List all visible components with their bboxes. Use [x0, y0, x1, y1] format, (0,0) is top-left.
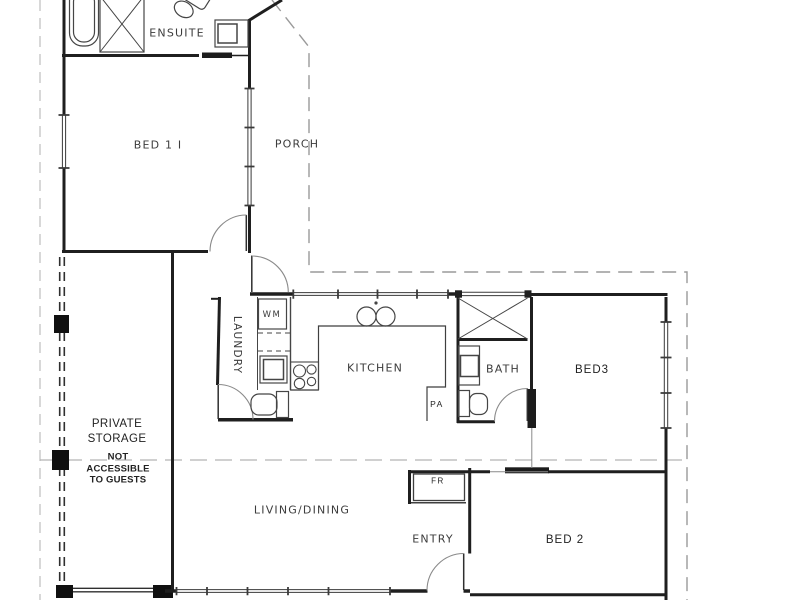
bathtub-icon: [70, 0, 99, 46]
bath-door: [495, 389, 528, 422]
appliance-label-fridge: FR: [431, 477, 445, 486]
kitchen-sink-icon: [357, 301, 395, 326]
room-label-kitchen: KITCHEN: [347, 362, 403, 375]
room-label-private-storage-line2: STORAGE: [88, 433, 147, 445]
storage-note-line1: NOT: [108, 452, 129, 463]
room-label-bed1: BED 1 I: [134, 139, 183, 152]
appliance-label-washing-machine: WM: [263, 310, 282, 320]
room-label-bed3: BED3: [575, 364, 609, 376]
room-label-ensuite: ENSUITE: [149, 27, 205, 40]
storage-note-line3: TO GUESTS: [90, 475, 147, 486]
slider-tracks: [490, 428, 548, 472]
ensuite-slider-door: [202, 53, 232, 59]
bed3-slider-door: [528, 389, 537, 428]
walls: [62, 0, 668, 600]
floorplan-drawing: [0, 0, 800, 600]
front-entry-door: [427, 554, 464, 591]
room-label-entry: ENTRY: [412, 533, 454, 546]
room-label-bed2: BED 2: [546, 534, 584, 546]
bath-toilet-icon: [459, 391, 488, 417]
room-label-bath: BATH: [486, 363, 520, 376]
room-label-laundry: LAUNDRY: [231, 316, 243, 374]
label-pantry: PA: [430, 399, 444, 409]
bath-vanity-icon: [459, 346, 480, 385]
room-label-porch: PORCH: [275, 138, 319, 151]
bath-shower-icon: [458, 298, 528, 339]
floorplan-canvas: ENSUITE BED 1 I PORCH LAUNDRY WM KITCHEN…: [0, 0, 800, 600]
cooktop-icon: [291, 362, 319, 390]
bed2-slider-door: [505, 467, 549, 473]
room-label-private-storage-line1: PRIVATE: [92, 418, 142, 430]
doors: [210, 215, 528, 591]
bed1-door: [210, 215, 247, 252]
ensuite-vanity-icon: [215, 20, 248, 47]
rear-entry-door: [252, 256, 288, 293]
room-label-living-dining: LIVING/DINING: [254, 504, 350, 517]
ensuite-shower-icon: [100, 0, 144, 52]
ensuite-toilet-icon: [165, 0, 215, 25]
laundry-door: [218, 385, 253, 420]
windows: [59, 88, 672, 595]
laundry-toilet-icon: [251, 392, 289, 418]
storage-note-line2: ACCESSIBLE: [86, 464, 149, 475]
